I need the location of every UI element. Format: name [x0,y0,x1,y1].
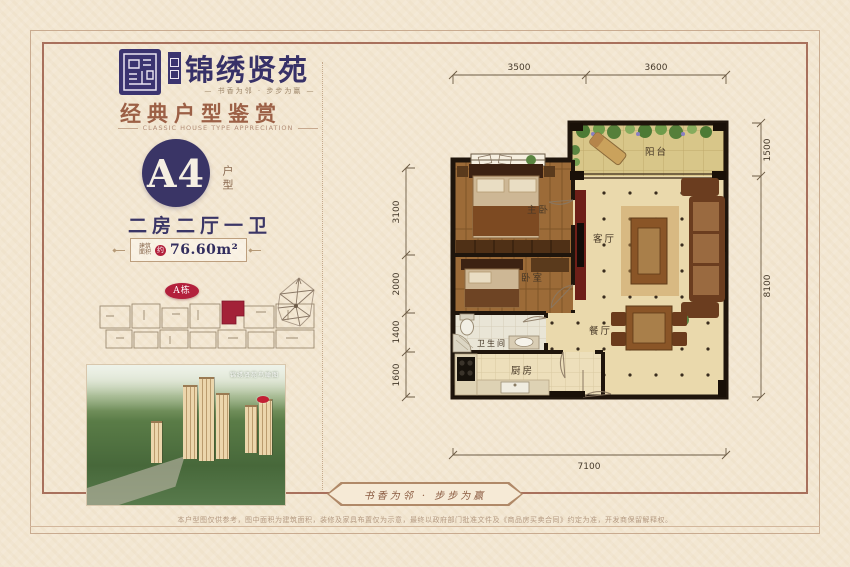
aerial-tower [183,385,197,459]
area-flank-right [252,250,261,251]
aerial-tower [259,399,272,455]
aerial-tower [151,421,162,463]
area-label: 建筑 面积 [139,244,151,256]
aerial-building-marker [257,396,269,403]
dim-top-1: 3500 [508,63,531,73]
logo-vertical-mark [168,52,181,84]
floor-plan: 阳台 主卧 客厅 卧室 卫生间 餐厅 厨房 3500 3600 3100 200… [383,50,823,500]
unit-layout: 二房二厅一卫 [128,211,308,238]
dim-left-1: 3100 [392,200,402,223]
approx-badge: 约 [155,245,166,256]
room-label-master: 主卧 [527,204,550,216]
outer-frame-second-line [30,526,820,527]
room-label-bedroom2: 卧室 [521,272,544,284]
poster-canvas: 锦绣贤苑 — 书香为邻 · 步步为赢 — 经典户型鉴赏 CLASSIC HOUS… [0,0,850,567]
slogan-badge: 书香为邻 · 步步为赢 [327,482,523,506]
area-flank-left [116,250,125,251]
unit-code-suffix: 户型 [219,165,235,193]
room-label-kitchen: 厨房 [511,365,534,377]
room-label-bath: 卫生间 [477,338,507,348]
dim-left-2: 2000 [392,272,402,295]
aerial-tower [199,377,214,461]
room-label-living: 客厅 [593,233,616,245]
unit-area-box: 建筑 面积 约 76.60m² [130,238,247,262]
dim-right-1: 1500 [763,138,773,161]
north-compass-icon [270,272,322,332]
slogan-text: 书香为邻 · 步步为赢 [364,487,487,502]
area-value: 76.60m² [170,242,238,258]
room-label-balcony: 阳台 [645,146,668,158]
aerial-road [86,456,185,506]
dim-bottom: 7100 [578,462,601,472]
bay-window-plant [526,155,536,165]
dotted-divider [322,62,323,490]
aerial-tower [216,393,229,459]
seal-stamp-icon [118,48,162,96]
disclaimer-text: 本户型图仅供参考，图中面积为建筑面积，装修及家具布置仅为示意，最终以政府部门批准… [0,515,850,525]
aerial-caption: 锦绣贤苑鸟瞰图 [230,370,279,379]
dim-left-4: 1600 [392,363,402,386]
aerial-view-image: 锦绣贤苑鸟瞰图 [86,364,286,506]
dim-top-2: 3600 [645,63,668,73]
dim-left-3: 1400 [392,320,402,343]
highlighted-unit-a4 [222,301,244,324]
section-subtitle: CLASSIC HOUSE TYPE APPRECIATION [118,124,318,132]
aerial-tower [245,405,257,453]
brand-tagline: — 书香为邻 · 步步为赢 — [190,86,330,96]
tv-icon [577,223,584,267]
unit-code: A4 [147,151,205,196]
unit-code-circle: A4 [142,139,210,207]
unit-area-row: 建筑 面积 约 76.60m² [116,238,316,262]
section-subtitle-en: CLASSIC HOUSE TYPE APPRECIATION [143,124,294,132]
room-label-dining: 餐厅 [589,325,612,337]
dim-right-2: 8100 [763,274,773,297]
